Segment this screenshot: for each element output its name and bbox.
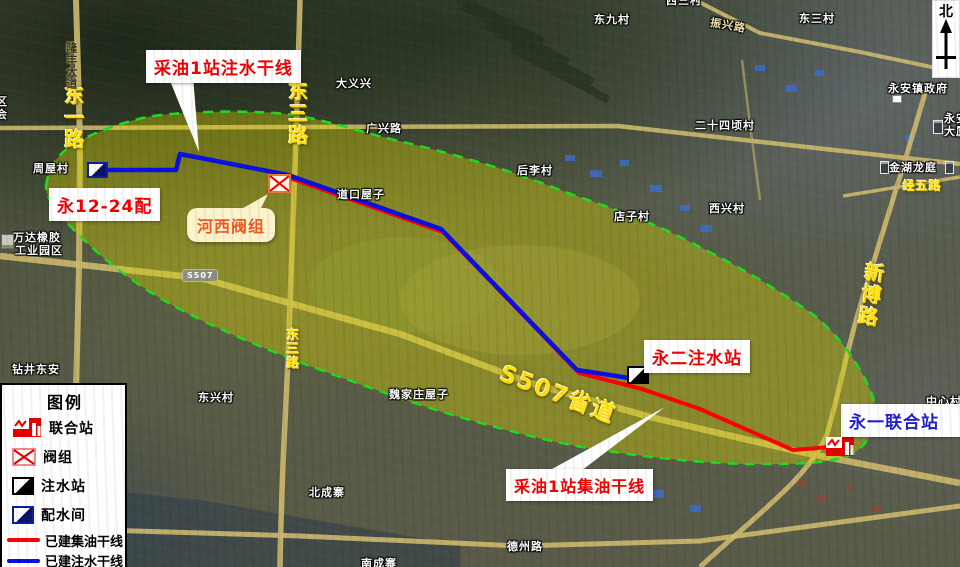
callout-oil-trunk: 采油1站集油干线: [506, 469, 653, 501]
place-label-wanda-2: 工业园区: [15, 244, 63, 257]
place-label-dongjiu: 东九村: [594, 13, 630, 26]
legend-label-injection-station: 注水站: [41, 476, 86, 496]
government-marker-icon: [892, 95, 902, 103]
place-label-yongan-bldg-2: 大厦: [944, 125, 960, 138]
place-label-dianzi: 店子村: [614, 210, 650, 223]
place-label-weijiazhuang: 魏家庄屋子: [389, 388, 449, 401]
place-label-xixing: 西兴村: [709, 202, 745, 215]
place-label-edge-qu: 区: [0, 95, 8, 108]
place-label-dongxing: 东兴村: [198, 391, 234, 404]
legend: 图例 联合站 阀组 注水站 配水间: [0, 383, 127, 567]
place-label-edge-hui: 会: [0, 108, 8, 121]
water-distribution-room-icon: [87, 162, 108, 178]
water-distribution-room-icon: [12, 506, 34, 524]
legend-item-injection-station: 注水站: [5, 472, 125, 501]
compass-north-label: 北: [939, 5, 953, 19]
road-label-dongsan-lower: 东三路: [284, 328, 298, 370]
injection-station-icon: [12, 477, 34, 495]
building-icon: [933, 120, 943, 134]
legend-label-oil-line: 已建集油干线: [45, 531, 123, 550]
legend-item-distribution-room: 配水间: [5, 501, 125, 530]
oilfield-region-fill: [46, 112, 875, 465]
valve-group-icon: [268, 174, 291, 193]
legend-label-valve-group: 阀组: [43, 447, 73, 467]
legend-item-union-station: 联合站: [5, 413, 125, 442]
place-label-dongsan-village: 东三村: [799, 12, 835, 25]
legend-item-valve-group: 阀组: [5, 442, 125, 471]
callout-distribution-room: 永12-24配: [49, 188, 160, 221]
valve-group-icon: [12, 448, 36, 466]
place-label-dayixing: 大义兴: [336, 77, 372, 90]
legend-item-water-line: 已建注水干线: [5, 551, 125, 567]
s507-shield: S507: [182, 269, 218, 282]
road-label-dongsan-upper: 东三路: [286, 81, 307, 147]
callout-injection-station: 永二注水站: [644, 340, 750, 373]
legend-item-oil-line: 已建集油干线: [5, 530, 125, 550]
water-line-swatch: [7, 559, 40, 563]
map-stage: 周屋村 万达橡胶 工业园区 钻井东安 东兴村 大义兴 东九村 东三村 西三村 后…: [0, 0, 960, 567]
place-label-wanda-1: 万达橡胶: [13, 231, 61, 244]
road-label-longfeng: 隆丰大道: [63, 42, 79, 90]
place-label-yongan-gov: 永安镇政府: [888, 82, 948, 95]
map-overlay: [0, 0, 960, 567]
legend-title: 图例: [5, 389, 125, 413]
road-label-dezhou: 德州路: [507, 540, 543, 553]
factory-icon: [1, 234, 14, 249]
legend-label-union-station: 联合站: [49, 418, 94, 438]
compass: 北: [932, 0, 960, 78]
place-label-yongan-bldg-1: 永安: [944, 112, 960, 125]
road-zhenxing: [695, 0, 960, 73]
road-label-jingwu: 经五路: [903, 180, 942, 193]
callout-union-station: 永一联合站: [841, 404, 960, 437]
building-icon: [880, 161, 889, 174]
road-label-guangxing: 广兴路: [366, 122, 402, 135]
place-label-xisan-village: 西三村: [666, 0, 702, 7]
callout-water-trunk: 采油1站注水干线: [146, 50, 301, 83]
legend-label-water-line: 已建注水干线: [45, 551, 123, 567]
road-label-dongyi: 东一路: [62, 85, 83, 151]
union-station-icon: [12, 417, 42, 438]
callout-valve-group: 河西阀组: [187, 208, 275, 242]
building-icon: [945, 161, 954, 174]
place-label-jinhu: 金湖龙庭: [889, 161, 937, 174]
place-label-daokou: 道口屋子: [337, 188, 385, 201]
place-label-nancheng: 南成寨: [361, 557, 397, 567]
union-station-icon: [825, 436, 855, 457]
legend-label-distribution-room: 配水间: [41, 505, 86, 525]
place-label-ershisiqing: 二十四顷村: [695, 119, 755, 132]
place-label-zhouwu: 周屋村: [33, 162, 69, 175]
north-arrow-icon: [933, 19, 959, 71]
oilfield-region: [46, 112, 875, 465]
oil-line-swatch: [7, 538, 40, 542]
place-label-beicheng: 北成寨: [309, 486, 345, 499]
place-label-houli: 后李村: [517, 164, 553, 177]
place-label-zuanjing: 钻井东安: [12, 363, 60, 376]
